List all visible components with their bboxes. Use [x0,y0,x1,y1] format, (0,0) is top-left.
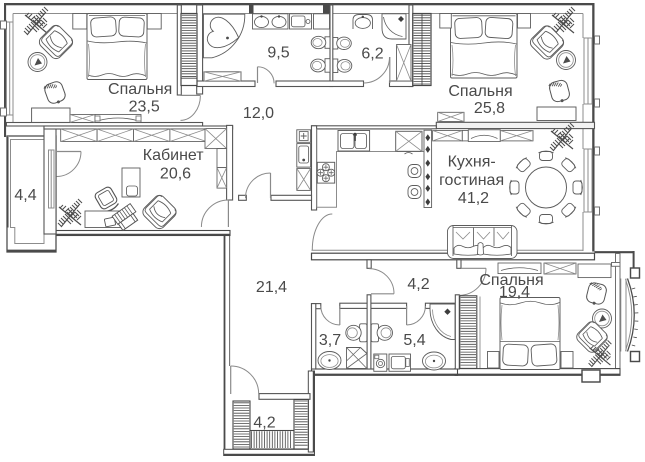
svg-text:Спальня: Спальня [448,83,512,100]
svg-text:6,2: 6,2 [361,46,383,63]
svg-text:12,0: 12,0 [243,105,274,122]
svg-text:4,2: 4,2 [407,276,429,293]
svg-text:4,2: 4,2 [253,414,275,431]
svg-text:20,6: 20,6 [160,166,191,183]
svg-text:5,4: 5,4 [403,332,425,349]
svg-text:25,8: 25,8 [474,100,505,117]
svg-text:Кухня-: Кухня- [448,154,496,171]
svg-text:19,4: 19,4 [499,284,530,301]
svg-text:23,5: 23,5 [129,99,160,116]
svg-text:41,2: 41,2 [458,190,489,207]
svg-text:4,4: 4,4 [14,187,36,204]
svg-text:9,5: 9,5 [267,45,289,62]
svg-text:21,4: 21,4 [256,279,287,296]
svg-text:Кабинет: Кабинет [143,147,205,164]
svg-text:гостиная: гостиная [439,172,504,189]
svg-text:3,7: 3,7 [319,332,341,349]
svg-text:Спальня: Спальня [108,81,172,98]
